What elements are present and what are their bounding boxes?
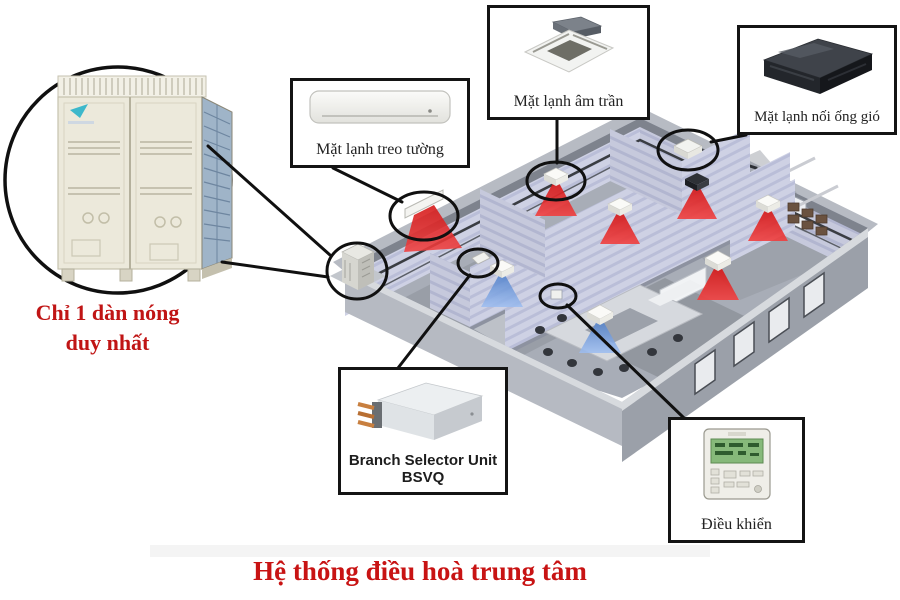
controller-image: [700, 426, 774, 502]
branch-selector-label-line2: BSVQ: [349, 469, 497, 486]
outdoor-unit-caption-line1: Chỉ 1 dàn nóng: [15, 298, 200, 328]
page-title: Hệ thống điều hoà trung tâm: [160, 556, 680, 587]
outdoor-unit-caption-line2: duy nhất: [15, 328, 200, 358]
cassette-unit-image: [519, 14, 619, 76]
diagram-canvas: Mặt lạnh treo tường Mặt lạnh âm trần Mặt…: [0, 0, 900, 600]
controller-in-scene: [551, 290, 562, 299]
ducted-unit-label: Mặt lạnh nối ống gió: [752, 107, 882, 132]
branch-selector-label-line1: Branch Selector Unit: [349, 452, 497, 469]
ducted-unit-image: [754, 34, 880, 96]
branch-selector-image: [356, 376, 490, 446]
cassette-unit-label: Mặt lạnh âm trần: [512, 91, 626, 117]
outdoor-unit-caption: Chỉ 1 dàn nóng duy nhất: [15, 298, 200, 357]
callout-box-branch-selector: Branch Selector Unit BSVQ: [338, 367, 508, 495]
wall-unit-label: Mặt lạnh treo tường: [314, 139, 446, 165]
controller-label: Điều khiển: [699, 514, 774, 540]
wall-unit-image: [308, 87, 452, 129]
callout-line-outdoor-bottom: [222, 262, 328, 277]
callout-line-wall-unit: [333, 168, 402, 202]
callout-box-cassette-unit: Mặt lạnh âm trần: [487, 5, 650, 120]
callout-box-controller: Điều khiển: [668, 417, 805, 543]
callout-box-wall-unit: Mặt lạnh treo tường: [290, 78, 470, 168]
callout-box-ducted-unit: Mặt lạnh nối ống gió: [737, 25, 897, 135]
branch-selector-label: Branch Selector Unit BSVQ: [347, 450, 499, 493]
outdoor-unit-image: [5, 67, 232, 293]
